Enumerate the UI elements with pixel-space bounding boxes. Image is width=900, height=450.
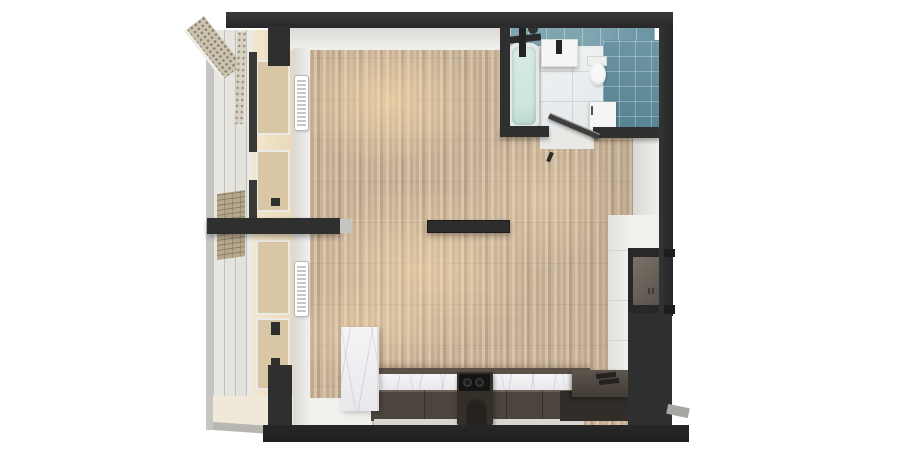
inner-wall-right: [633, 138, 660, 215]
floating-partition-wall-stub: [427, 220, 510, 233]
window-mullion: [249, 180, 257, 218]
window-panel: [256, 240, 290, 315]
window-mullion: [249, 52, 257, 152]
washing-machine-detail: [591, 106, 593, 115]
inner-wall-top: [288, 26, 502, 50]
wall-bottom: [263, 425, 689, 442]
sink-faucet: [556, 40, 562, 54]
partition-wall-stub: [207, 218, 340, 234]
burner: [475, 378, 484, 387]
radiator: [295, 262, 308, 316]
wall-top-left-corner: [268, 26, 290, 66]
niche-handle-top: [664, 249, 675, 257]
cabinet-seam: [424, 390, 425, 421]
cabinet-seam: [506, 390, 507, 421]
marble-end-panel: [341, 327, 379, 411]
bathroom-wall-bottom-left: [500, 126, 549, 137]
floorplan-canvas: [0, 0, 900, 450]
wall-top: [226, 12, 673, 28]
niche-handle-bottom: [664, 305, 675, 314]
bathtub-water: [512, 47, 536, 125]
toilet: [589, 63, 606, 86]
window-panel: [256, 60, 290, 135]
bathroom-wall-bottom-right: [593, 127, 660, 138]
wall-left-bottom: [268, 365, 292, 427]
window-latch: [271, 198, 280, 206]
shower-mixer: [519, 27, 526, 57]
cabinet-seam: [542, 390, 543, 421]
radiator: [295, 76, 308, 130]
burner: [463, 378, 472, 387]
wall-right: [659, 26, 673, 316]
niche-detail: [648, 288, 650, 294]
bathroom-wall-left: [500, 26, 510, 137]
partition-wall-endcap: [340, 219, 352, 233]
window-latch: [271, 322, 280, 335]
niche-detail: [652, 288, 654, 294]
bar-stool: [466, 396, 487, 425]
